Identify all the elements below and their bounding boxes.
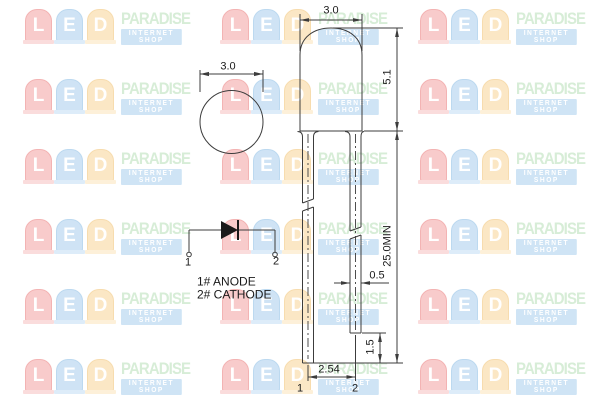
pitch-label: 2.54 (318, 365, 339, 376)
lead-width-label: 0.5 (369, 271, 384, 282)
body-width-dimension (300, 14, 362, 51)
led-datasheet-drawing: LEDPARADISEINTERNET SHOPLEDPARADISEINTER… (0, 0, 600, 400)
top-view-outline (200, 91, 263, 154)
schematic-pin2-label: 2 (273, 257, 279, 268)
technical-drawing-svg (0, 0, 600, 400)
lead-offset-label: 1.5 (366, 339, 377, 354)
body-width-label: 3.0 (323, 6, 338, 17)
schematic-pin1-label: 1 (185, 258, 191, 269)
anode-lead (303, 134, 314, 363)
diode-triangle (221, 221, 238, 239)
led-body-outline (300, 28, 362, 131)
head-height-label: 5.1 (383, 69, 394, 84)
cathode-lead (350, 134, 361, 333)
top-view-diameter-label: 3.0 (220, 62, 235, 73)
cathode-label: 2# CATHODE (197, 289, 271, 302)
lead-length-label: 25.0MIN (383, 225, 394, 267)
side-view-pin2-label: 2 (352, 384, 358, 395)
led-top-view (200, 70, 263, 154)
side-view-pin1-label: 1 (297, 384, 303, 395)
diode-schematic (187, 220, 278, 257)
lead-shoulders (298, 132, 365, 138)
top-view-diameter-dimension (200, 70, 263, 92)
